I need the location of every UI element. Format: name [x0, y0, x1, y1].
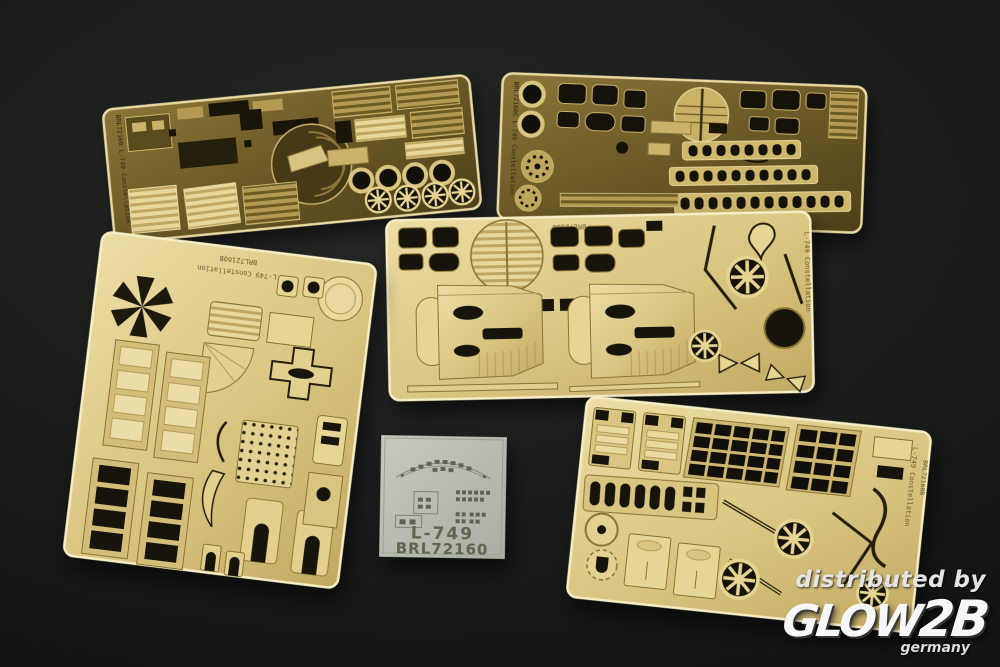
decal-sheet-artwork: L-749 BRL72160: [379, 435, 507, 559]
fret-top-right-artwork: BRL72160C L-749 Constellation: [495, 71, 868, 235]
glow2b-logo-glow: GLOW: [780, 596, 922, 647]
decal-sheet: L-749 BRL72160: [379, 435, 507, 559]
fret-bottom-left-artwork: BRL72160B L-749 Constellation: [61, 229, 379, 591]
nacelle-wrap-part: [568, 282, 696, 379]
fret-bottom-left: BRL72160B L-749 Constellation: [61, 229, 379, 591]
slot-strip-part: [669, 165, 817, 185]
nacelle-wrap-part: [416, 283, 544, 380]
grille-grid-part: [786, 425, 861, 497]
glow2b-logo-2b: 2B: [916, 590, 989, 648]
hole-cutout: [764, 308, 805, 349]
panel-part: [588, 407, 636, 469]
watermark: distributed by GLOW2B germany: [783, 569, 986, 655]
grille-grid-part: [683, 418, 789, 487]
decal-code: BRL72160: [396, 539, 489, 559]
fret-middle-artwork: BRL72160 L-749 Constellation: [384, 210, 816, 403]
fret-edge-text: L-749 Constellation: [802, 232, 812, 312]
fret-middle: BRL72160 L-749 Constellation: [384, 210, 816, 403]
instrument-panel-part: [235, 420, 298, 488]
slot-strip-part: [682, 140, 800, 160]
fret-top-right: BRL72160C L-749 Constellation: [495, 71, 868, 235]
product-photo: BRL72160 L-749 Constellation: [0, 0, 1000, 667]
door-panel-part: [673, 543, 720, 599]
door-panel-part: [624, 534, 671, 590]
watermark-distributed-by: distributed by: [783, 569, 986, 592]
glow2b-logo: GLOW2B: [780, 594, 989, 644]
panel-part: [638, 412, 686, 474]
